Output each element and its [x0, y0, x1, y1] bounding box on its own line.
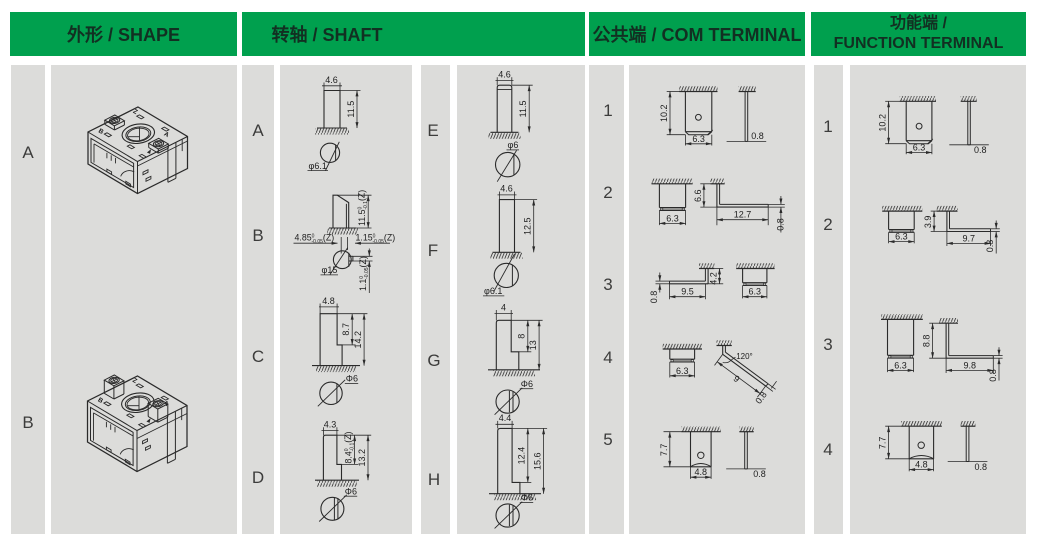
svg-text:12.5: 12.5 [523, 217, 533, 235]
svg-text:8.8: 8.8 [922, 335, 932, 348]
svg-text:Φ6: Φ6 [521, 493, 533, 503]
svg-text:4.8: 4.8 [322, 296, 335, 306]
svg-text:6.3: 6.3 [749, 287, 762, 297]
svg-text:Φ6: Φ6 [521, 379, 533, 389]
svg-text:10.2: 10.2 [878, 114, 888, 132]
svg-text:6.3: 6.3 [692, 134, 705, 144]
svg-text:12.4: 12.4 [517, 447, 527, 465]
svg-text:11.5: 11.5 [346, 101, 356, 118]
svg-text:0.8: 0.8 [753, 390, 768, 406]
svg-text:0.8: 0.8 [649, 291, 659, 304]
svg-text:6.3: 6.3 [666, 213, 679, 223]
svg-text:8.40-0.1(Z): 8.40-0.1(Z) [343, 431, 355, 463]
svg-text:φ6.1: φ6.1 [484, 286, 502, 296]
svg-text:15.6: 15.6 [533, 452, 543, 470]
svg-text:4.2: 4.2 [709, 272, 719, 285]
svg-text:6.3: 6.3 [913, 143, 926, 153]
svg-text:4.4: 4.4 [499, 413, 512, 423]
svg-text:4.6: 4.6 [498, 70, 511, 80]
svg-text:6.3: 6.3 [676, 366, 689, 376]
svg-text:0.8: 0.8 [751, 131, 764, 141]
svg-text:4.3: 4.3 [324, 420, 337, 430]
svg-text:φ6.1: φ6.1 [309, 161, 327, 171]
svg-text:9.5: 9.5 [681, 287, 694, 297]
svg-text:12.7: 12.7 [734, 210, 752, 220]
svg-text:7.7: 7.7 [659, 444, 669, 457]
svg-text:0.8: 0.8 [753, 469, 766, 479]
svg-text:6.6: 6.6 [693, 190, 703, 203]
svg-text:13.2: 13.2 [357, 449, 367, 467]
svg-text:φ6: φ6 [508, 140, 519, 150]
svg-text:8: 8 [517, 334, 527, 339]
svg-text:A: A [162, 131, 170, 140]
svg-text:6.3: 6.3 [894, 360, 907, 370]
svg-text:13: 13 [528, 340, 538, 350]
svg-text:Φ6: Φ6 [346, 374, 358, 384]
svg-text:11.5: 11.5 [518, 100, 528, 117]
svg-text:3.9: 3.9 [923, 216, 933, 229]
svg-text:Φ6: Φ6 [345, 486, 357, 496]
svg-text:B: B [97, 128, 105, 137]
svg-text:0.8: 0.8 [775, 218, 785, 231]
svg-text:120°: 120° [736, 352, 753, 361]
svg-text:10.2: 10.2 [659, 104, 669, 122]
svg-text:9.7: 9.7 [962, 233, 975, 243]
svg-text:6.3: 6.3 [895, 232, 908, 242]
svg-text:4: 4 [501, 302, 506, 312]
svg-text:7.7: 7.7 [878, 437, 888, 450]
svg-text:4.8: 4.8 [695, 467, 708, 477]
svg-text:4.8: 4.8 [915, 460, 928, 470]
svg-text:9.8: 9.8 [963, 360, 976, 370]
svg-text:14.2: 14.2 [353, 331, 363, 349]
svg-text:0.8: 0.8 [988, 369, 998, 382]
svg-text:4.6: 4.6 [500, 184, 513, 194]
svg-text:0.8: 0.8 [975, 462, 988, 472]
svg-text:0.8: 0.8 [985, 240, 995, 253]
svg-text:0.8: 0.8 [974, 145, 987, 155]
svg-text:8.7: 8.7 [341, 323, 351, 336]
svg-text:B: B [97, 397, 105, 406]
svg-text:4.6: 4.6 [325, 75, 338, 85]
